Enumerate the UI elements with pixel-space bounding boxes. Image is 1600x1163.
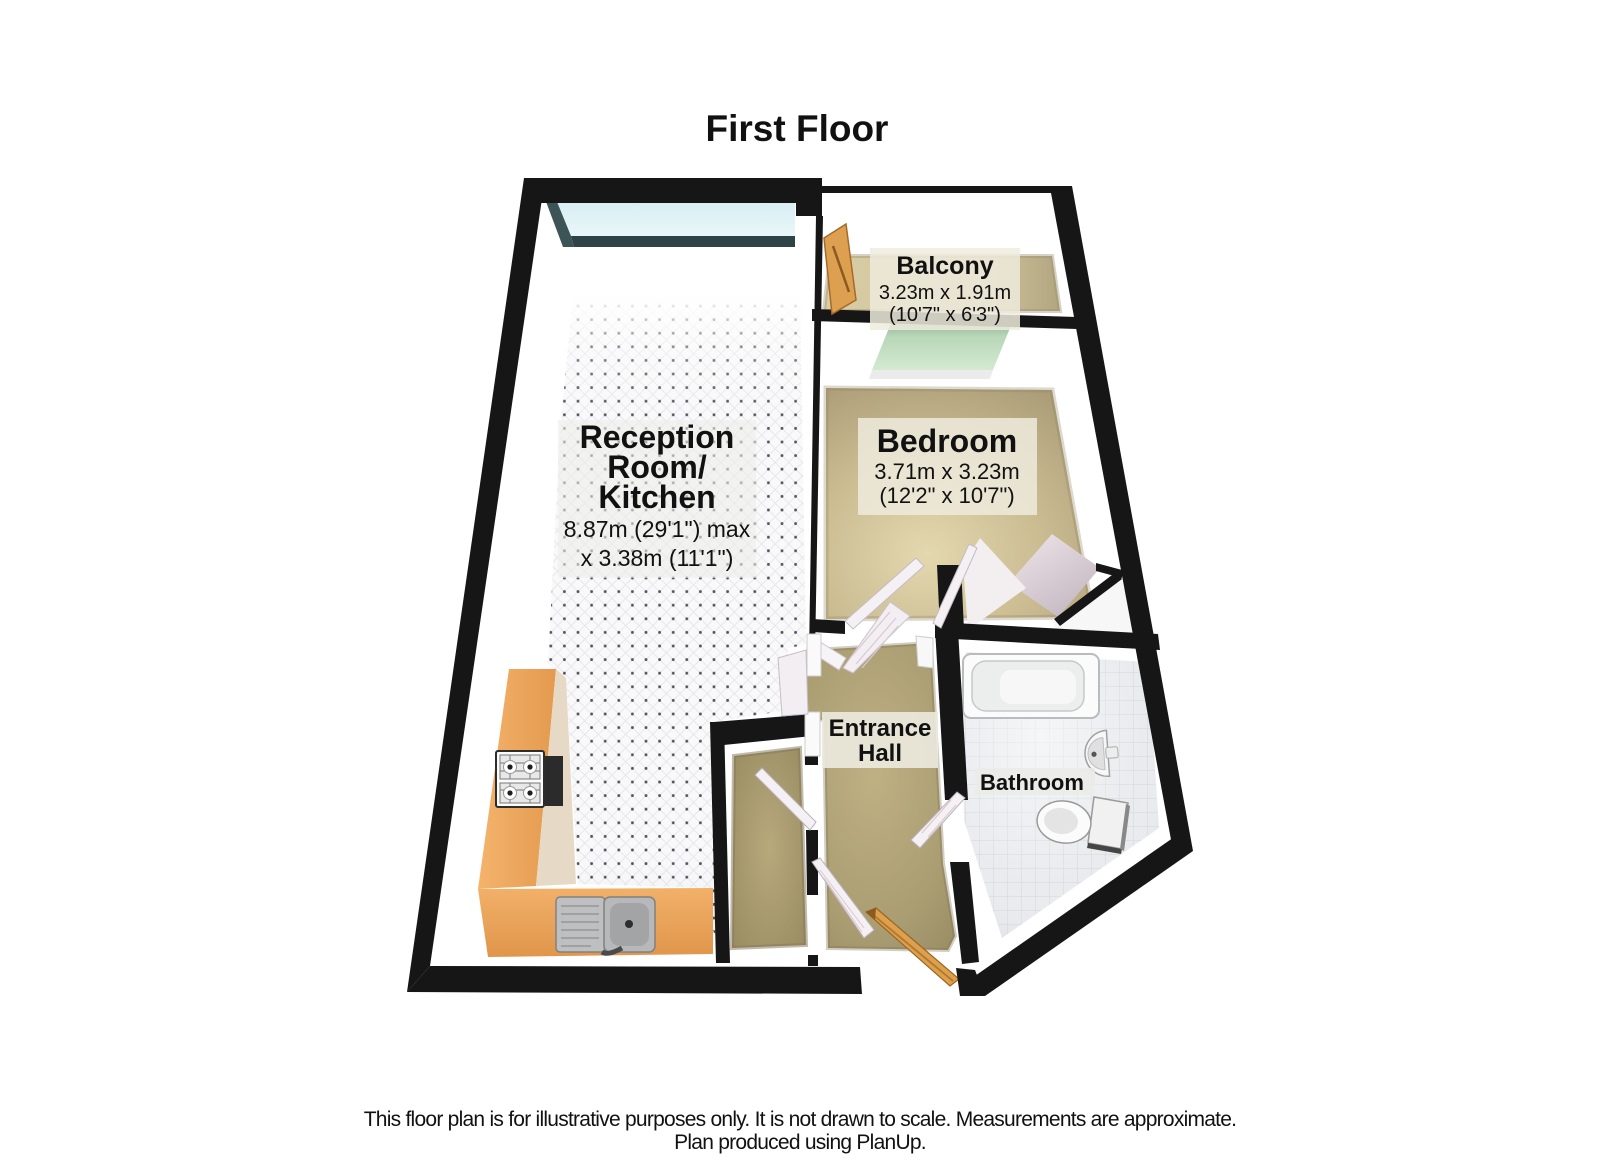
svg-text:Balcony: Balcony <box>896 252 993 280</box>
svg-text:First Floor: First Floor <box>706 108 889 149</box>
svg-text:(10'7" x 6'3"): (10'7" x 6'3") <box>889 304 1001 326</box>
svg-text:(12'2" x 10'7"): (12'2" x 10'7") <box>879 483 1014 508</box>
svg-text:Entrance: Entrance <box>829 715 932 742</box>
svg-text:3.23m x 1.91m: 3.23m x 1.91m <box>879 282 1011 304</box>
svg-text:3.71m x 3.23m: 3.71m x 3.23m <box>874 459 1020 484</box>
svg-text:Plan produced using PlanUp.: Plan produced using PlanUp. <box>674 1131 926 1154</box>
svg-text:Hall: Hall <box>858 740 902 767</box>
svg-text:Kitchen: Kitchen <box>598 479 715 515</box>
svg-text:Bathroom: Bathroom <box>980 770 1084 795</box>
svg-text:x 3.38m (11'1"): x 3.38m (11'1") <box>581 545 734 571</box>
svg-text:Bedroom: Bedroom <box>877 423 1017 459</box>
svg-text:This floor plan is for illustr: This floor plan is for illustrative purp… <box>364 1108 1237 1131</box>
svg-text:8.87m (29'1") max: 8.87m (29'1") max <box>564 516 751 542</box>
